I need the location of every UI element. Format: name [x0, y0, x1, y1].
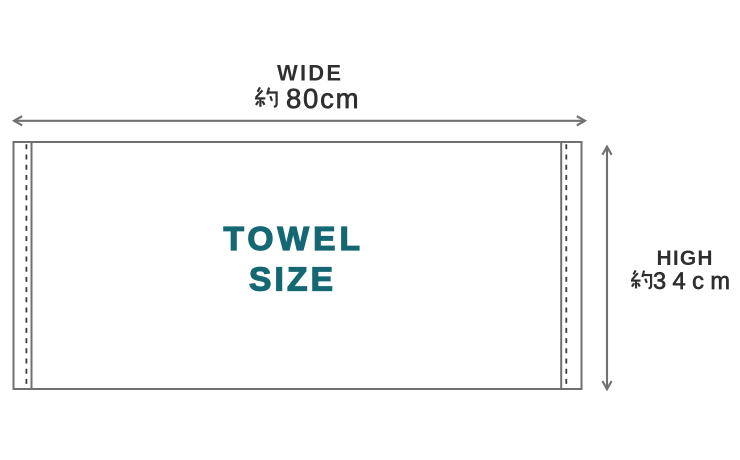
svg-text:SIZE: SIZE	[249, 262, 333, 299]
svg-text:HIGH: HIGH	[657, 247, 713, 270]
svg-text:80cm: 80cm	[286, 83, 359, 114]
svg-text:WIDE: WIDE	[277, 60, 341, 85]
svg-text:34cm: 34cm	[653, 269, 730, 295]
